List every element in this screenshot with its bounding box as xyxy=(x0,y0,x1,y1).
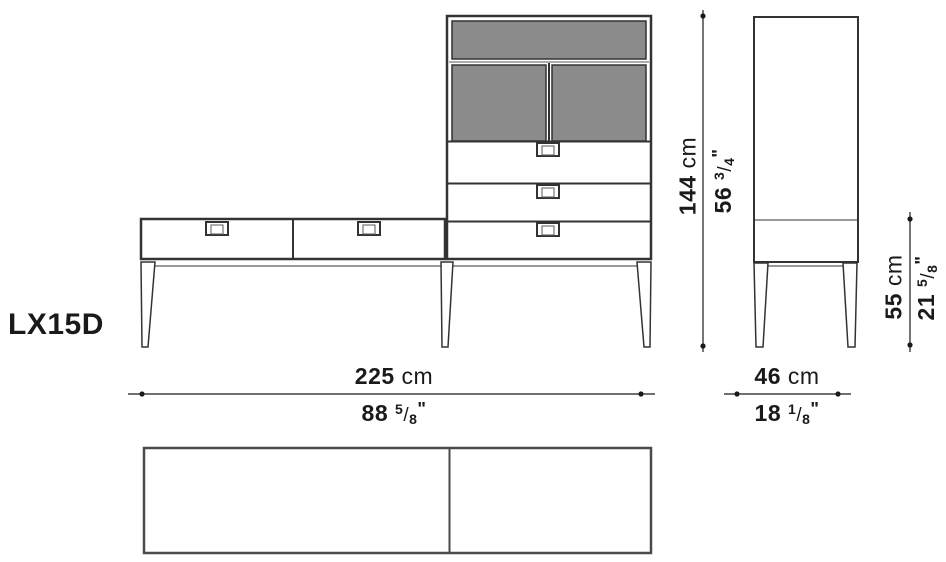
drawer-handle xyxy=(358,222,380,235)
plan-view xyxy=(144,448,651,553)
left-door-panel xyxy=(452,65,546,141)
front-view-legs xyxy=(141,262,651,347)
leg xyxy=(754,263,768,347)
technical-drawing xyxy=(0,0,946,562)
dim-total-width-inches: 88 5/8" xyxy=(244,399,544,427)
leg xyxy=(441,262,453,347)
front-view-low-unit xyxy=(141,219,445,259)
side-view-outline xyxy=(754,17,858,262)
plan-view-outline xyxy=(144,448,651,553)
leg xyxy=(843,263,857,347)
dimension-line-total-width xyxy=(128,391,655,396)
furniture-spec-sheet: LX15D 225 cm 88 5/8" 46 cm 18 1/8" 144 c… xyxy=(0,0,946,562)
drawer-handle xyxy=(537,185,559,198)
product-code-label: LX15D xyxy=(8,308,104,342)
front-view-tall-unit xyxy=(447,16,651,259)
leg xyxy=(637,262,651,347)
dim-depth-cm: 46 cm xyxy=(712,363,862,390)
leg xyxy=(141,262,155,347)
drawer-handle xyxy=(537,223,559,236)
dim-tall-height-cm: 144 cm xyxy=(675,137,702,215)
dim-depth-inches: 18 1/8" xyxy=(712,399,862,427)
dimension-line-depth xyxy=(724,391,851,396)
side-view xyxy=(754,17,858,347)
dim-low-height-inches: 21 5/8" xyxy=(912,256,940,321)
drawer-handle xyxy=(537,143,559,156)
flap-door-panel xyxy=(452,21,646,59)
dim-low-height-cm: 55 cm xyxy=(881,254,908,319)
drawer-handle xyxy=(206,222,228,235)
dim-tall-height-inches: 56 3/4" xyxy=(709,149,737,214)
dim-total-width-cm: 225 cm xyxy=(244,363,544,390)
right-door-panel xyxy=(552,65,646,141)
